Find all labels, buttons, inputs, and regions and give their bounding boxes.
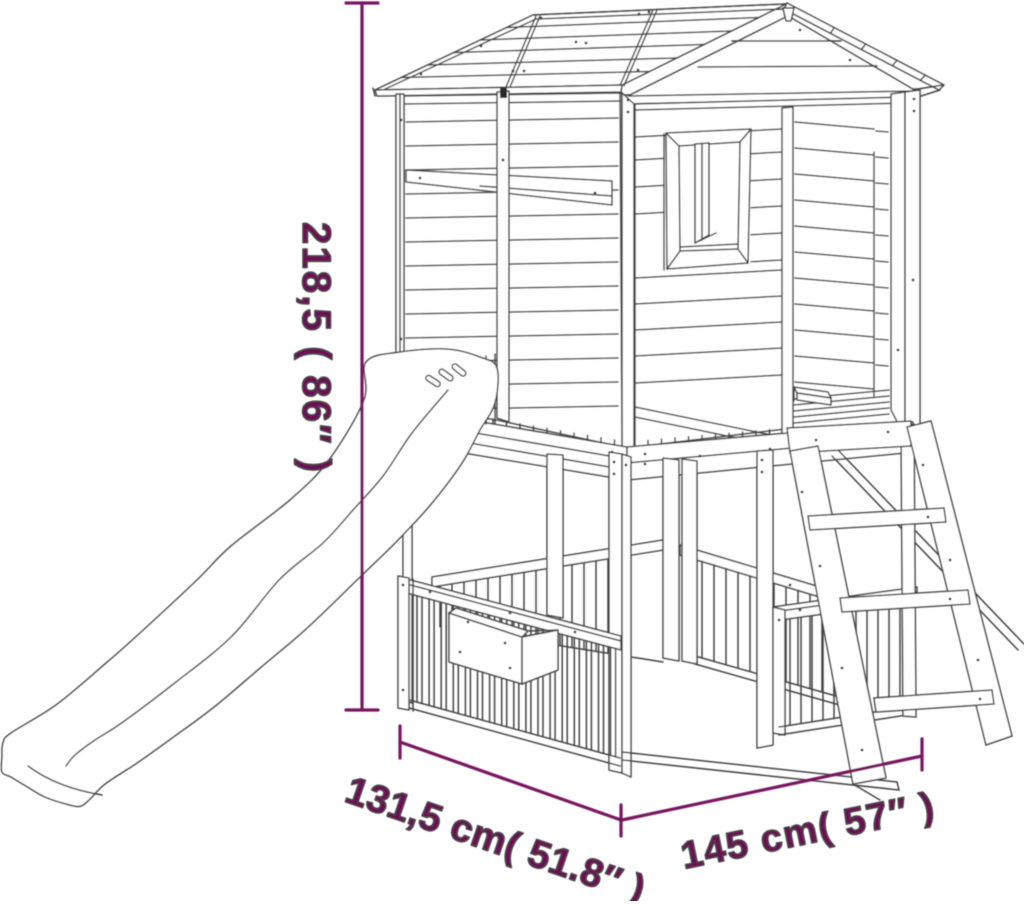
svg-text:218,5 ( 86″ ): 218,5 ( 86″ ) <box>294 222 338 474</box>
